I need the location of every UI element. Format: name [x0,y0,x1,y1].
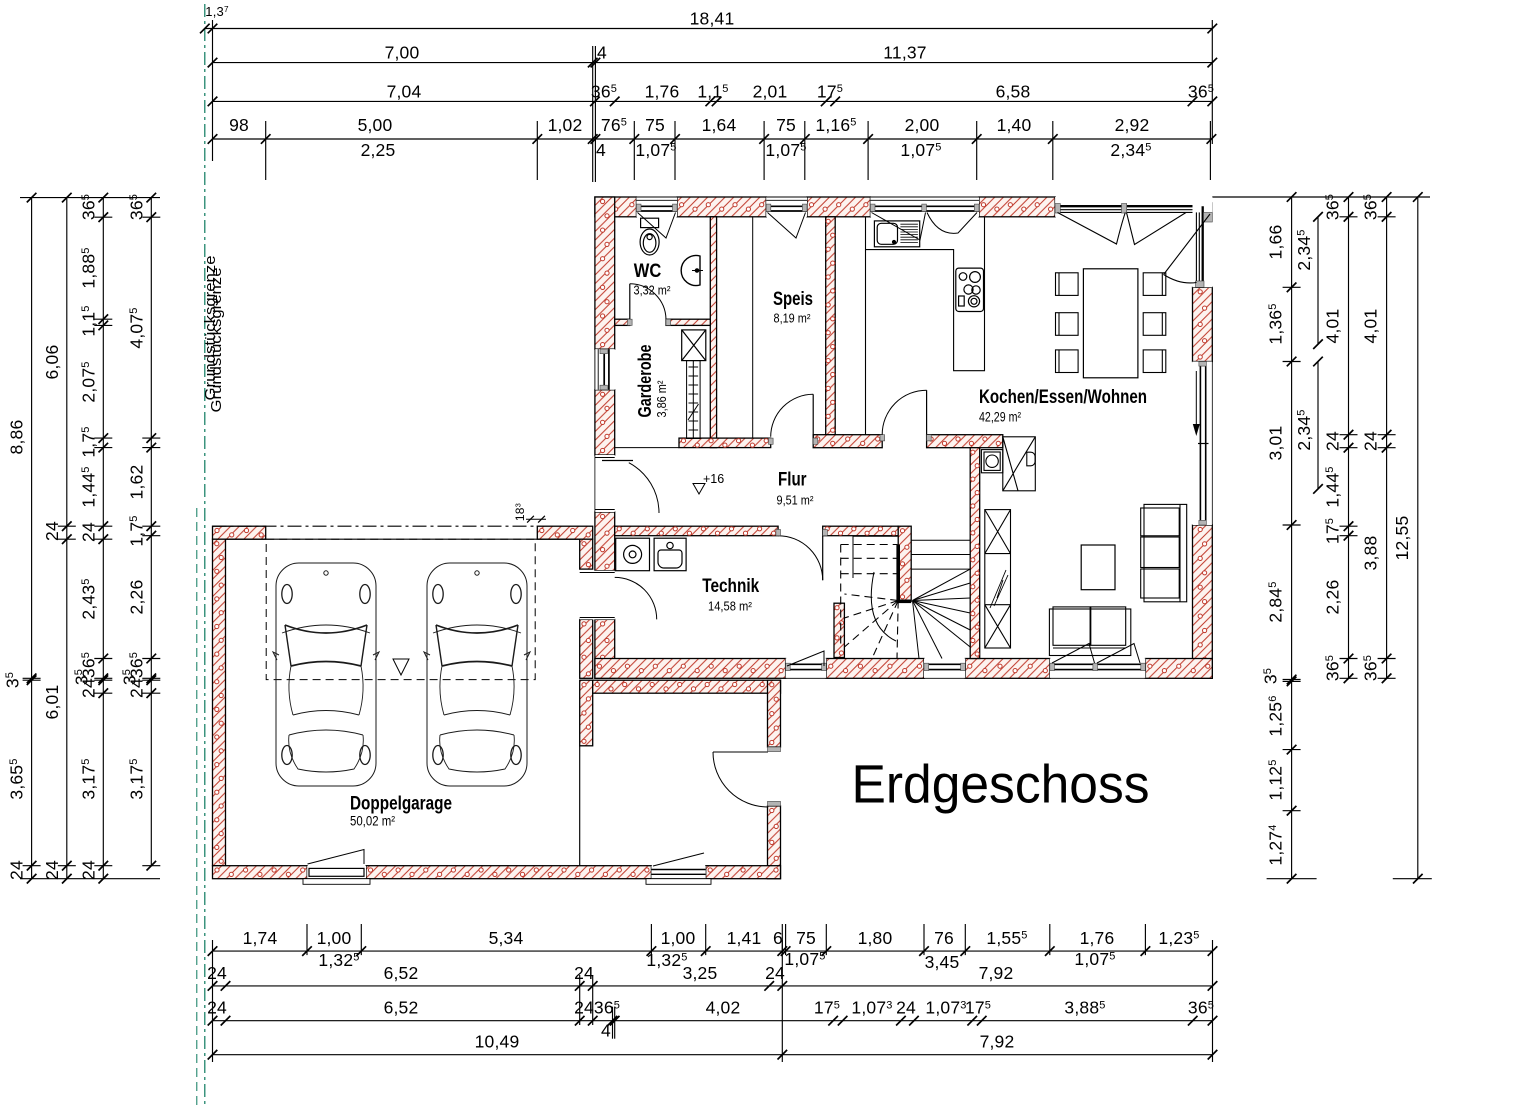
svg-text:2,25: 2,25 [361,140,396,160]
svg-text:24: 24 [574,998,594,1018]
svg-text:3,25: 3,25 [683,963,718,983]
svg-text:2,92: 2,92 [1115,115,1150,135]
svg-text:7,92: 7,92 [979,963,1014,983]
svg-text:5,34: 5,34 [489,928,524,948]
svg-text:24: 24 [7,860,27,880]
svg-text:4,01: 4,01 [1361,309,1381,344]
svg-text:1,00: 1,00 [317,928,352,948]
svg-text:6,52: 6,52 [384,963,419,983]
svg-text:1,40: 1,40 [997,115,1032,135]
svg-text:42,29 m²: 42,29 m² [979,409,1021,425]
svg-text:1,64: 1,64 [702,115,737,135]
svg-text:2,01: 2,01 [753,81,788,101]
svg-text:3,45: 3,45 [925,952,960,972]
svg-text:3,88: 3,88 [1361,536,1381,571]
svg-text:Speis: Speis [773,289,813,310]
svg-text:Erdgeschoss: Erdgeschoss [852,755,1150,815]
svg-text:6,58: 6,58 [996,81,1031,101]
svg-text:Grundstücksgrenze: Grundstücksgrenze [209,268,225,413]
svg-text:3,01: 3,01 [1266,426,1286,461]
svg-text:11,37: 11,37 [883,43,927,63]
svg-text:2,26: 2,26 [1323,580,1343,615]
svg-text:5,00: 5,00 [358,115,393,135]
svg-text:24: 24 [126,678,146,698]
svg-text:24: 24 [574,963,594,983]
svg-text:4,02: 4,02 [706,998,741,1018]
svg-text:9,51 m²: 9,51 m² [777,494,814,508]
svg-text:4: 4 [597,43,607,63]
svg-text:24: 24 [207,998,227,1018]
svg-text:10,49: 10,49 [475,1032,520,1052]
svg-text:1,80: 1,80 [858,928,893,948]
svg-text:12,55: 12,55 [1392,516,1412,561]
svg-text:3,32 m²: 3,32 m² [634,284,671,298]
svg-text:Kochen/Essen/Wohnen: Kochen/Essen/Wohnen [979,387,1147,408]
svg-text:24: 24 [78,522,98,542]
svg-text:75: 75 [796,928,816,948]
svg-text:24: 24 [78,678,98,698]
svg-text:8,19 m²: 8,19 m² [774,312,811,326]
svg-text:50,02 m²: 50,02 m² [350,814,395,829]
svg-text:1,62: 1,62 [126,465,146,500]
svg-text:Flur: Flur [778,470,807,491]
svg-text:Technik: Technik [702,576,759,597]
svg-text:18,41: 18,41 [690,9,735,29]
svg-text:6,52: 6,52 [384,998,419,1018]
svg-text:14,58 m²: 14,58 m² [708,600,752,614]
svg-text:7,92: 7,92 [980,1032,1015,1052]
svg-text:98: 98 [229,115,249,135]
svg-text:75: 75 [645,115,665,135]
svg-text:Doppelgarage: Doppelgarage [350,793,452,815]
svg-text:1,02: 1,02 [548,115,583,135]
svg-text:24: 24 [42,521,62,541]
svg-text:4: 4 [596,140,606,160]
svg-text:24: 24 [1361,431,1381,451]
svg-text:6,06: 6,06 [42,345,62,380]
svg-text:4,01: 4,01 [1323,309,1343,344]
svg-text:24: 24 [42,860,62,880]
svg-text:2,00: 2,00 [905,115,940,135]
svg-text:76: 76 [934,928,954,948]
svg-text:1,66: 1,66 [1266,225,1286,260]
svg-text:24: 24 [78,860,98,880]
svg-text:2,26: 2,26 [126,580,146,615]
svg-text:1,76: 1,76 [645,81,680,101]
svg-text:4: 4 [601,1021,611,1041]
svg-text:6: 6 [773,928,783,948]
svg-text:8,86: 8,86 [7,420,27,455]
svg-text:7,04: 7,04 [387,81,422,101]
svg-text:24: 24 [1323,431,1343,451]
svg-text:7,00: 7,00 [385,43,420,63]
svg-text:6,01: 6,01 [42,685,62,720]
svg-text:1,74: 1,74 [243,928,278,948]
svg-text:1,00: 1,00 [661,928,696,948]
svg-text:24: 24 [207,963,227,983]
svg-text:3,86 m²: 3,86 m² [655,381,669,418]
svg-text:24: 24 [896,998,916,1018]
svg-text:75: 75 [776,115,796,135]
svg-text:1,76: 1,76 [1080,928,1115,948]
svg-text:WC: WC [634,261,662,282]
svg-text:Garderobe: Garderobe [635,345,655,418]
svg-text:1,41: 1,41 [727,928,762,948]
svg-text:+16: +16 [703,472,724,486]
